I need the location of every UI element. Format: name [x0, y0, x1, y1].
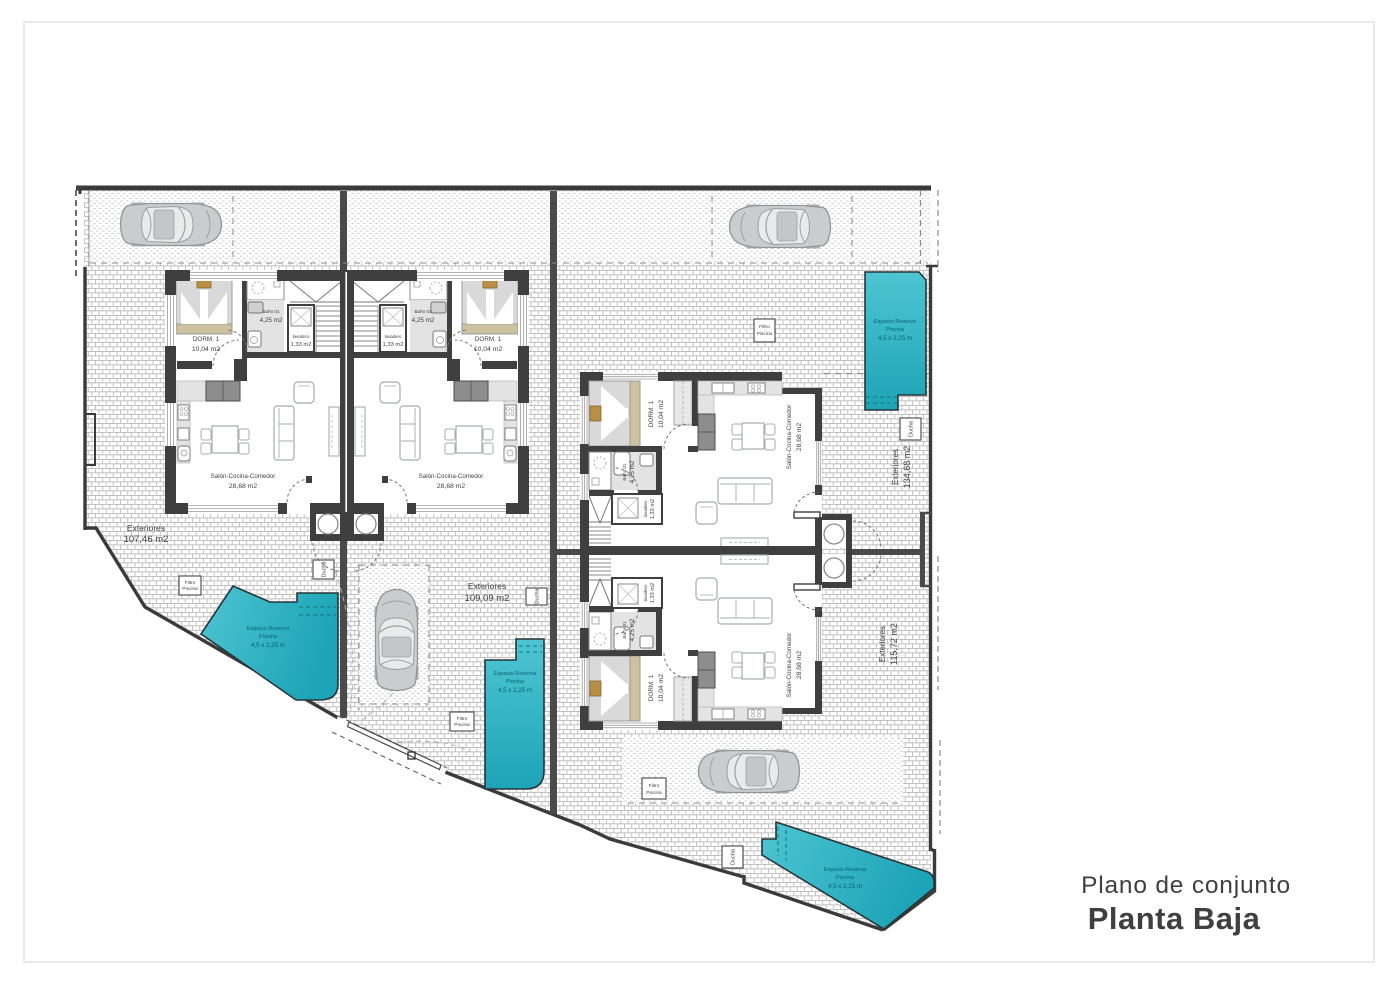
svg-text:10,04 m2: 10,04 m2 — [192, 346, 221, 353]
svg-text:Filtro: Filtro — [457, 716, 468, 722]
svg-text:Piscina: Piscina — [259, 634, 278, 640]
svg-text:Salón-Cocina-Comedor: Salón-Cocina-Comedor — [419, 473, 484, 480]
svg-text:Baño 01: Baño 01 — [414, 309, 432, 314]
svg-text:Ducha: Ducha — [731, 848, 737, 865]
svg-text:Ducha: Ducha — [322, 561, 328, 578]
svg-text:Piscina: Piscina — [646, 790, 662, 796]
svg-text:Ducha: Ducha — [909, 420, 915, 437]
svg-text:Salón-Cocina-Comedor: Salón-Cocina-Comedor — [786, 633, 793, 698]
svg-text:28,68 m2: 28,68 m2 — [229, 483, 258, 490]
svg-text:Espacio Reserva: Espacio Reserva — [874, 319, 917, 325]
svg-text:109,09 m2: 109,09 m2 — [465, 593, 510, 604]
svg-text:1,33 m2: 1,33 m2 — [650, 583, 656, 603]
svg-text:Planta Baja: Planta Baja — [1088, 901, 1261, 936]
svg-text:1,33 m2: 1,33 m2 — [291, 342, 312, 348]
svg-text:Piscina: Piscina — [886, 327, 905, 333]
svg-text:Exteriores: Exteriores — [468, 581, 506, 591]
svg-text:DORM. 1: DORM. 1 — [193, 336, 220, 343]
svg-text:1,33 m2: 1,33 m2 — [383, 342, 404, 348]
svg-text:Salón-Cocina-Comedor: Salón-Cocina-Comedor — [211, 473, 276, 480]
svg-text:10,04 m2: 10,04 m2 — [474, 346, 503, 353]
svg-text:4,5 x 2,25 m: 4,5 x 2,25 m — [498, 687, 532, 694]
svg-text:Plano de conjunto: Plano de conjunto — [1081, 872, 1291, 899]
svg-text:Piscina: Piscina — [454, 722, 470, 728]
svg-text:Filtro: Filtro — [185, 580, 196, 586]
svg-text:Filtro: Filtro — [759, 324, 770, 330]
svg-text:Exteriores: Exteriores — [127, 523, 165, 533]
svg-text:28,68 m2: 28,68 m2 — [796, 423, 803, 452]
svg-text:Piscina: Piscina — [836, 875, 855, 881]
svg-text:4,5 x 2,25 m: 4,5 x 2,25 m — [828, 883, 862, 890]
svg-text:Piscina: Piscina — [506, 679, 525, 685]
svg-text:1,33 m2: 1,33 m2 — [650, 499, 656, 519]
svg-text:107,46 m2: 107,46 m2 — [124, 534, 169, 545]
svg-text:DORM. 1: DORM. 1 — [475, 336, 502, 343]
svg-text:10,04 m2: 10,04 m2 — [658, 674, 665, 703]
svg-text:28,68 m2: 28,68 m2 — [796, 651, 803, 680]
svg-text:DORM. 1: DORM. 1 — [648, 400, 655, 427]
svg-text:4,5 x 2,25 m: 4,5 x 2,25 m — [251, 642, 285, 649]
svg-text:Ducha: Ducha — [535, 588, 541, 605]
svg-text:4,25 m2: 4,25 m2 — [629, 618, 636, 641]
svg-text:Filtro: Filtro — [649, 783, 660, 789]
svg-text:Exteriores: Exteriores — [891, 449, 900, 485]
svg-text:4,25 m2: 4,25 m2 — [629, 460, 636, 483]
svg-text:4,25 m2: 4,25 m2 — [412, 317, 435, 324]
svg-text:Espacio Reserva: Espacio Reserva — [824, 867, 867, 873]
svg-text:28,68 m2: 28,68 m2 — [437, 483, 466, 490]
svg-text:Piscina: Piscina — [757, 331, 773, 337]
svg-text:Baño 01: Baño 01 — [262, 309, 280, 314]
svg-text:134,68 m2: 134,68 m2 — [902, 446, 912, 489]
svg-text:lavadero: lavadero — [293, 334, 310, 339]
svg-text:lavadero: lavadero — [643, 500, 648, 517]
svg-text:DORM. 1: DORM. 1 — [648, 674, 655, 701]
svg-text:Exteriores: Exteriores — [878, 626, 887, 662]
svg-text:Baño 01: Baño 01 — [622, 621, 627, 639]
svg-text:Espacio Reserva: Espacio Reserva — [247, 626, 290, 632]
svg-text:4,5 x 2,25 m: 4,5 x 2,25 m — [878, 335, 912, 342]
svg-text:Piscina: Piscina — [182, 586, 198, 592]
svg-text:4,25 m2: 4,25 m2 — [260, 317, 283, 324]
svg-text:10,04 m2: 10,04 m2 — [658, 400, 665, 429]
svg-text:lavadero: lavadero — [385, 334, 402, 339]
svg-text:Baño 01: Baño 01 — [622, 463, 627, 481]
svg-text:lavadero: lavadero — [643, 584, 648, 601]
svg-text:Salón-Cocina-Comedor: Salón-Cocina-Comedor — [786, 405, 793, 470]
svg-text:115,72 m2: 115,72 m2 — [889, 623, 899, 665]
svg-text:Espacio Reserva: Espacio Reserva — [494, 671, 537, 677]
